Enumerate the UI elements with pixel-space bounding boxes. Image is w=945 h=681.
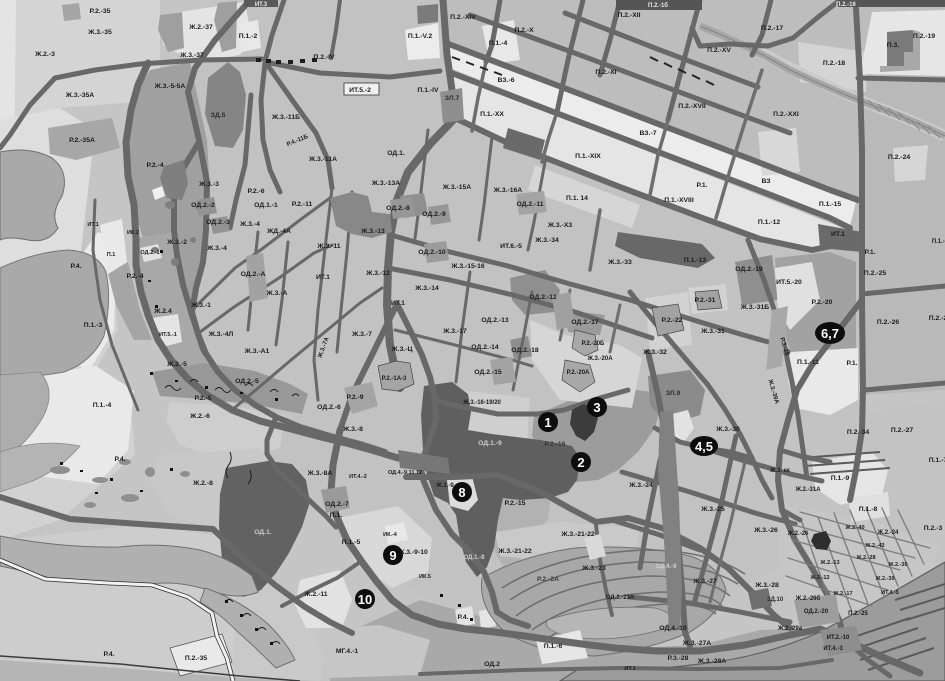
svg-text:Ж.3.-16А: Ж.3.-16А <box>493 187 523 194</box>
svg-text:П.2.-ХVII: П.2.-ХVII <box>678 103 706 110</box>
svg-text:Р.1.: Р.1. <box>696 182 707 189</box>
svg-text:ОД.2.-17: ОД.2.-17 <box>571 319 599 326</box>
svg-text:Ж.3.-20А: Ж.3.-20А <box>586 356 613 362</box>
svg-text:ИТ.1: ИТ.1 <box>624 666 635 672</box>
svg-text:ИТ.4.-5: ИТ.4.-5 <box>881 590 899 596</box>
svg-text:П.3.: П.3. <box>887 42 900 49</box>
svg-text:Ж.2.-31А: Ж.2.-31А <box>794 487 821 493</box>
svg-text:ЗЛ.9: ЗЛ.9 <box>666 390 681 397</box>
svg-text:П.1.-12: П.1.-12 <box>758 219 780 226</box>
svg-text:ИТ.3: ИТ.3 <box>255 2 268 8</box>
svg-text:Р.2.-2А: Р.2.-2А <box>537 576 559 583</box>
svg-text:П.1.-5: П.1.-5 <box>932 239 945 245</box>
svg-text:ИТ.4.-2: ИТ.4.-2 <box>349 474 367 480</box>
svg-text:П.1.-5: П.1.-5 <box>342 539 361 546</box>
svg-text:Ж.3.-14: Ж.3.-14 <box>414 285 439 292</box>
svg-text:Ж.3.-3: Ж.3.-3 <box>198 181 219 188</box>
svg-text:ЗД.10: ЗД.10 <box>767 597 784 603</box>
svg-text:Ж.2.-24: Ж.2.-24 <box>877 530 899 536</box>
svg-text:Ж.2.-13: Ж.2.-13 <box>819 560 839 566</box>
svg-text:ВЗ.-7: ВЗ.-7 <box>639 130 656 137</box>
svg-text:ОД.2.-19: ОД.2.-19 <box>735 266 763 273</box>
svg-text:Ж.3.-15А: Ж.3.-15А <box>442 184 472 191</box>
svg-text:П.2.-16: П.2.-16 <box>836 2 856 8</box>
svg-text:ОД.2.-А: ОД.2.-А <box>241 271 266 278</box>
svg-text:ОД.4.-10: ОД.4.-10 <box>659 625 687 632</box>
svg-text:П.1. 14: П.1. 14 <box>566 195 588 202</box>
svg-text:ИТ.5.-2: ИТ.5.-2 <box>349 87 371 94</box>
svg-text:Ж.3.-4: Ж.3.-4 <box>206 245 227 252</box>
svg-text:3: 3 <box>593 400 600 415</box>
svg-text:Р.2.-35: Р.2.-35 <box>90 8 111 15</box>
svg-text:П.1.-7: П.1.-7 <box>929 457 945 464</box>
svg-text:Ж.3.-28А: Ж.3.-28А <box>697 658 727 665</box>
svg-text:ИТ.1: ИТ.1 <box>391 300 405 307</box>
svg-text:Ж.3.-А: Ж.3.-А <box>266 290 288 297</box>
svg-text:Ж.3. кк: Ж.3. кк <box>769 468 790 474</box>
svg-text:Ж.3.-7: Ж.3.-7 <box>351 331 372 338</box>
svg-text:П.1.-ХХ: П.1.-ХХ <box>480 111 504 118</box>
svg-text:Ж.3.-2: Ж.3.-2 <box>166 239 187 246</box>
svg-text:П.1.-15: П.1.-15 <box>819 201 841 208</box>
svg-text:6,7: 6,7 <box>821 326 839 341</box>
svg-text:Ж.2.-8: Ж.2.-8 <box>192 480 213 487</box>
svg-text:Ж.3.-27: Ж.3.-27 <box>692 578 717 585</box>
svg-text:П.1.-8: П.1.-8 <box>859 506 878 513</box>
svg-text:10: 10 <box>358 592 372 607</box>
svg-text:ИТ.1: ИТ.1 <box>831 231 845 238</box>
svg-text:Ж.2.-3: Ж.2.-3 <box>34 51 55 58</box>
svg-text:Р.2.-15: Р.2.-15 <box>505 500 526 507</box>
svg-text:ОД.2.-5: ОД.2.-5 <box>235 378 259 385</box>
svg-text:ИТ.2.-10: ИТ.2.-10 <box>827 635 850 641</box>
svg-text:П.1.: П.1. <box>330 512 343 519</box>
svg-text:Р.2.-4: Р.2.-4 <box>126 273 143 280</box>
svg-text:Ж.3.-12: Ж.3.-12 <box>365 270 390 277</box>
svg-text:Ж.3.-37: Ж.3.-37 <box>179 52 204 59</box>
svg-text:Ж.3.-26: Ж.3.-26 <box>753 527 778 534</box>
svg-text:1: 1 <box>544 415 551 430</box>
svg-text:Ж.3.-35А: Ж.3.-35А <box>65 92 95 99</box>
svg-text:ИТ.5.-20: ИТ.5.-20 <box>776 279 802 286</box>
svg-text:П.2.-Х: П.2.-Х <box>514 27 534 34</box>
svg-text:Р.2.-20А: Р.2.-20А <box>567 370 590 376</box>
svg-text:П.2.-IV: П.2.-IV <box>313 54 335 61</box>
svg-text:Р.2.-9: Р.2.-9 <box>346 394 363 401</box>
svg-text:Р.1.: Р.1. <box>864 249 875 256</box>
svg-text:П.2.-24: П.2.-24 <box>888 154 910 161</box>
svg-text:П.2.-35: П.2.-35 <box>185 655 207 662</box>
svg-text:Ж.3.-31Б: Ж.3.-31Б <box>740 304 770 311</box>
svg-text:Ж.3.-15-16: Ж.3.-15-16 <box>450 263 485 270</box>
svg-text:Р.2.-35А: Р.2.-35А <box>69 137 95 144</box>
svg-text:ОД.1.-1: ОД.1.-1 <box>254 202 278 209</box>
svg-text:ОД.2.-14: ОД.2.-14 <box>471 344 499 351</box>
svg-text:Ж.3.-25: Ж.3.-25 <box>700 506 725 513</box>
svg-text:4,5: 4,5 <box>695 439 713 454</box>
svg-text:П.1.-11: П.1.-11 <box>797 359 819 366</box>
svg-text:Ж.3.-31: Ж.3.-31 <box>700 328 725 335</box>
svg-text:Ж.3.-9: Ж.3.-9 <box>435 483 454 489</box>
svg-text:Ж.3.-5-5А: Ж.3.-5-5А <box>154 83 186 90</box>
svg-text:Ж.2.-26: Ж.2.-26 <box>787 531 809 537</box>
svg-text:9: 9 <box>389 548 396 563</box>
svg-text:Р.2.-4: Р.2.-4 <box>146 162 163 169</box>
svg-text:ОД.2.-15: ОД.2.-15 <box>474 369 502 376</box>
svg-text:Ж.3.-4Л: Ж.3.-4Л <box>208 331 234 338</box>
svg-text:Ж.3.-28: Ж.3.-28 <box>754 582 779 589</box>
svg-text:Ж.3.-32: Ж.3.-32 <box>642 349 667 356</box>
svg-text:П.2.-ХV: П.2.-ХV <box>707 47 731 54</box>
svg-text:Ж.3.-17: Ж.3.-17 <box>442 328 467 335</box>
svg-text:Р.4.: Р.4. <box>457 614 468 621</box>
svg-text:П.2.-1б: П.2.-1б <box>648 2 668 9</box>
svg-text:Ж.2.-5: Ж.2.-5 <box>166 361 187 368</box>
svg-text:Ж.3.-4: Ж.3.-4 <box>239 221 260 228</box>
svg-text:П.1.-9: П.1.-9 <box>831 475 850 482</box>
svg-text:Ж.3.-27А: Ж.3.-27А <box>682 640 712 647</box>
svg-text:П.2.-19: П.2.-19 <box>913 33 935 40</box>
svg-text:ОД.2.-9: ОД.2.-9 <box>422 211 446 218</box>
svg-text:Ж.2.-39: Ж.2.-39 <box>874 576 894 582</box>
svg-text:Ж.3.-24: Ж.3.-24 <box>628 482 653 489</box>
svg-text:ОД.2.-7: ОД.2.-7 <box>325 501 349 508</box>
svg-text:П.2.-17: П.2.-17 <box>761 25 783 32</box>
svg-text:ОД.2.-18: ОД.2.-18 <box>511 347 539 354</box>
svg-text:П.2.-26: П.2.-26 <box>877 319 899 326</box>
svg-text:Р.2.-6: Р.2.-6 <box>247 188 264 195</box>
svg-text:ИК.2: ИК.2 <box>127 230 139 236</box>
svg-text:8: 8 <box>458 485 465 500</box>
svg-text:Ж.3.-11А: Ж.3.-11А <box>308 156 337 163</box>
svg-text:ЗЛ.7: ЗЛ.7 <box>445 95 460 102</box>
svg-text:ОД.2.-2: ОД.2.-2 <box>191 202 215 209</box>
svg-text:Р.2.-1А-3: Р.2.-1А-3 <box>382 376 407 382</box>
svg-text:П.1.-ХVIII: П.1.-ХVIII <box>664 197 694 204</box>
svg-text:П.1.-13: П.1.-13 <box>684 257 706 264</box>
svg-text:Ж.3.-Ц: Ж.3.-Ц <box>391 346 413 353</box>
svg-text:ОД.1.: ОД.1. <box>387 150 405 157</box>
svg-text:Р.2.-20Б: Р.2.-20Б <box>582 341 605 347</box>
svg-text:Ж.2.-30: Ж.2.-30 <box>887 562 907 568</box>
svg-text:Ж.3.-23: Ж.3.-23 <box>581 565 606 572</box>
svg-text:П.1.-V.2: П.1.-V.2 <box>408 33 433 40</box>
svg-text:ОД.2.-20: ОД.2.-20 <box>804 609 829 615</box>
svg-text:Р.3.-28: Р.3.-28 <box>668 655 689 662</box>
svg-text:Р.2.-31: Р.2.-31 <box>695 297 716 304</box>
svg-text:П.2.-27: П.2.-27 <box>891 427 913 434</box>
svg-text:Р.1.: Р.1. <box>846 360 857 367</box>
svg-text:Ж.2.-29а: Ж.2.-29а <box>777 626 803 632</box>
svg-text:П.1.-3: П.1.-3 <box>84 322 103 329</box>
svg-text:Р.4.: Р.4. <box>114 456 125 463</box>
svg-text:ЖД.-4А: ЖД.-4А <box>266 228 291 235</box>
svg-text:2: 2 <box>577 455 584 470</box>
svg-text:П.1.-2: П.1.-2 <box>239 33 258 40</box>
svg-text:Ж.3.-16-19/20: Ж.3.-16-19/20 <box>462 400 501 406</box>
svg-text:П.2.-25: П.2.-25 <box>864 270 886 277</box>
svg-text:ВЗ: ВЗ <box>761 178 770 185</box>
svg-text:ИТ.6.-5: ИТ.6.-5 <box>500 243 522 250</box>
svg-text:ИТ.4.-3: ИТ.4.-3 <box>823 646 843 652</box>
svg-text:П.1: П.1 <box>107 252 116 258</box>
svg-text:Ж.2.-43: Ж.2.-43 <box>864 543 884 549</box>
svg-text:Ж.3.-35: Ж.3.-35 <box>87 29 112 36</box>
svg-text:П.1.-4: П.1.-4 <box>489 40 508 47</box>
svg-text:Ж.3.-13А: Ж.3.-13А <box>371 180 401 187</box>
svg-text:Ж.2.-12: Ж.2.-12 <box>809 575 829 581</box>
svg-text:Ж.2.-28: Ж.2.-28 <box>855 555 875 561</box>
svg-text:Ж.2.-37: Ж.2.-37 <box>188 24 213 31</box>
svg-text:Ж.2.-11: Ж.2.-11 <box>303 591 327 598</box>
svg-text:Ж.3.-8А: Ж.3.-8А <box>307 470 333 477</box>
svg-text:ИК.5: ИК.5 <box>419 574 431 580</box>
svg-text:ОД.1.-8: ОД.1.-8 <box>464 555 486 561</box>
svg-text:ИТ.5.-1: ИТ.5.-1 <box>159 332 177 338</box>
svg-text:Ж.3.-21-22: Ж.3.-21-22 <box>497 548 532 555</box>
svg-text:Ж.3.-1: Ж.3.-1 <box>190 302 211 309</box>
svg-text:ОД.4.-9,11,12: ОД.4.-9,11,12 <box>388 470 422 476</box>
svg-text:Р.2.-5: Р.2.-5 <box>194 395 211 402</box>
svg-text:Ж.3.-8: Ж.3.-8 <box>342 426 363 433</box>
svg-text:Ж.2.-6: Ж.2.-6 <box>189 413 210 420</box>
svg-text:ОД.2: ОД.2 <box>484 661 500 668</box>
svg-text:Ж.3.-А1: Ж.3.-А1 <box>244 348 270 355</box>
svg-text:Ж.3.-11: Ж.3.-11 <box>316 243 340 250</box>
svg-text:ОД.2.-12: ОД.2.-12 <box>529 294 557 301</box>
svg-text:Ж.3.-13: Ж.3.-13 <box>360 228 385 235</box>
svg-text:П.2.-25: П.2.-25 <box>848 611 868 617</box>
svg-text:П.2.-18: П.2.-18 <box>823 60 845 67</box>
svg-text:Ж.3.-21-22: Ж.3.-21-22 <box>560 531 595 538</box>
svg-text:ВЗ.-6: ВЗ.-6 <box>497 77 514 84</box>
svg-text:Р.2.-11: Р.2.-11 <box>292 201 313 208</box>
svg-text:Р.2.-20: Р.2.-20 <box>812 299 833 306</box>
svg-text:Ж.2.-29б: Ж.2.-29б <box>795 595 821 602</box>
svg-text:ОД.1.-9: ОД.1.-9 <box>478 440 502 447</box>
svg-text:ОД.2.-11: ОД.2.-11 <box>516 201 543 208</box>
svg-text:П.2.-34: П.2.-34 <box>847 429 869 436</box>
svg-text:Р.4.: Р.4. <box>103 651 114 658</box>
svg-text:Р.4.: Р.4. <box>70 263 81 270</box>
svg-text:ОД.2.-8: ОД.2.-8 <box>386 205 410 212</box>
svg-text:Ж.3.-34: Ж.3.-34 <box>534 237 559 244</box>
svg-text:Р.2.-22: Р.2.-22 <box>662 317 683 324</box>
svg-text:МГ.4.-1: МГ.4.-1 <box>336 648 358 655</box>
svg-text:ИТ.1: ИТ.1 <box>316 274 330 281</box>
svg-text:ОД.2.-6: ОД.2.-6 <box>317 404 341 411</box>
svg-text:П.1.-4: П.1.-4 <box>93 402 112 409</box>
svg-text:ИК.-4: ИК.-4 <box>383 532 398 538</box>
svg-text:ОД.2.-10: ОД.2.-10 <box>418 249 446 256</box>
svg-text:ЗД.5: ЗД.5 <box>211 112 226 119</box>
svg-text:П.1.-IV: П.1.-IV <box>417 87 439 94</box>
svg-text:Ж.3.-33: Ж.3.-33 <box>607 259 632 266</box>
svg-text:П.2.-2: П.2.-2 <box>929 315 945 322</box>
svg-text:Р.2.-16: Р.2.-16 <box>545 441 566 448</box>
svg-text:П.2.-ХI: П.2.-ХI <box>595 69 616 76</box>
svg-text:ОД.2.-1: ОД.2.-1 <box>140 250 159 256</box>
svg-text:ОД.2.-23А: ОД.2.-23А <box>606 595 635 601</box>
svg-text:П.1.-6: П.1.-6 <box>544 643 563 650</box>
svg-text:ОД.2.-3: ОД.2.-3 <box>206 219 230 226</box>
svg-text:П.1.-ХIХ: П.1.-ХIХ <box>575 153 601 160</box>
svg-text:П.2.-3: П.2.-3 <box>924 525 943 532</box>
svg-text:П.2.-XII: П.2.-XII <box>617 12 640 19</box>
svg-text:ОД.4.-9: ОД.4.-9 <box>656 564 678 570</box>
svg-text:Ж.3.-Х3: Ж.3.-Х3 <box>547 222 572 229</box>
svg-text:ОД.2.-13: ОД.2.-13 <box>481 317 509 324</box>
svg-text:Ж.2.-17: Ж.2.-17 <box>832 591 852 597</box>
svg-text:П.2.-ХIV: П.2.-ХIV <box>450 14 476 21</box>
svg-text:Ж.2.4: Ж.2.4 <box>153 308 172 315</box>
svg-text:ИТ.1: ИТ.1 <box>87 222 98 228</box>
svg-text:Ж.3.-11Б: Ж.3.-11Б <box>271 114 300 121</box>
svg-text:П.2.-ХХI: П.2.-ХХI <box>773 111 799 118</box>
svg-text:Ж.3.-30: Ж.3.-30 <box>715 426 740 433</box>
svg-text:ОД.1.: ОД.1. <box>254 529 272 536</box>
svg-text:Ж.2.-40: Ж.2.-40 <box>844 525 864 531</box>
